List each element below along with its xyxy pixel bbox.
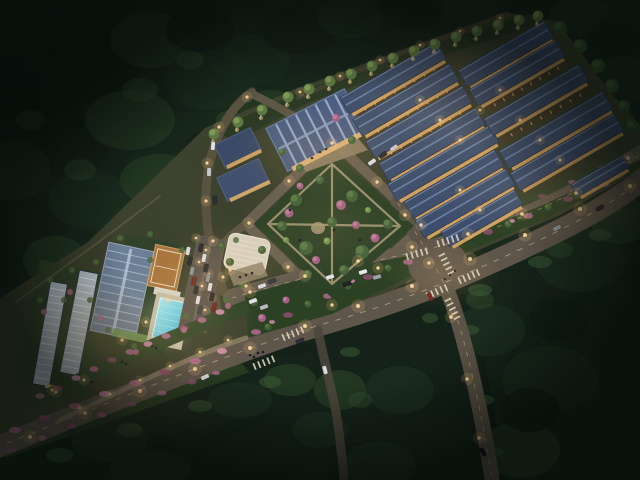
render-canvas: [0, 0, 640, 480]
aerial-dusk-masterplan-render: [0, 0, 640, 480]
vignette: [0, 0, 640, 480]
